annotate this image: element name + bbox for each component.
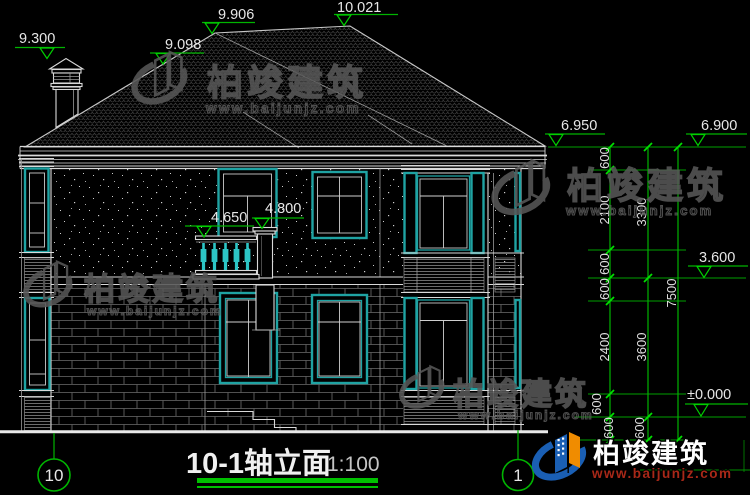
svg-text:www.baijunjz.com: www.baijunjz.com [457,408,594,422]
svg-text:600: 600 [597,278,612,300]
svg-text:3.600: 3.600 [699,250,735,266]
svg-text:www.baijunjz.com: www.baijunjz.com [86,304,223,318]
svg-text:600: 600 [597,253,612,275]
svg-text:10.021: 10.021 [337,0,381,16]
title-underline-thin [197,486,378,488]
title-underline [197,478,378,483]
svg-text:9.906: 9.906 [218,7,254,23]
svg-text:4.800: 4.800 [265,201,301,217]
first-floor-window-right [312,295,367,383]
svg-text:7500: 7500 [664,279,679,308]
brand-name: 柏竣建筑 [593,438,709,469]
svg-text:9.098: 9.098 [165,37,201,53]
brand-url: www.baijunjz.com [591,466,733,481]
svg-text:2400: 2400 [597,333,612,362]
svg-text:3600: 3600 [634,333,649,362]
svg-text:6.950: 6.950 [561,118,597,134]
second-floor-window-middle [313,172,367,238]
drawing-scale: 1:100 [327,453,380,476]
svg-text:600: 600 [601,417,616,439]
svg-text:柏竣建筑: 柏竣建筑 [84,272,220,307]
svg-text:柏竣建筑: 柏竣建筑 [453,377,589,412]
svg-text:10: 10 [45,466,64,485]
svg-text:柏竣建筑: 柏竣建筑 [207,62,367,103]
svg-text:www.baijunjz.com: www.baijunjz.com [205,101,361,116]
svg-text:6.900: 6.900 [701,118,737,134]
svg-text:1: 1 [513,466,522,485]
svg-text:600: 600 [632,417,647,439]
svg-text:±0.000: ±0.000 [687,387,731,403]
svg-text:4.650: 4.650 [211,210,247,226]
brand-logo: 柏竣建筑 www.baijunjz.com [530,432,733,485]
elevation-drawing: 600 2100 600 600 2400 600 600 3300 3600 … [0,0,750,495]
title-block: 10-1轴立面 1:100 [186,446,380,488]
svg-text:柏竣建筑: 柏竣建筑 [567,165,727,206]
svg-text:9.300: 9.300 [19,31,55,47]
drawing-title: 10-1轴立面 [186,446,331,480]
svg-text:www.baijunjz.com: www.baijunjz.com [565,203,713,218]
